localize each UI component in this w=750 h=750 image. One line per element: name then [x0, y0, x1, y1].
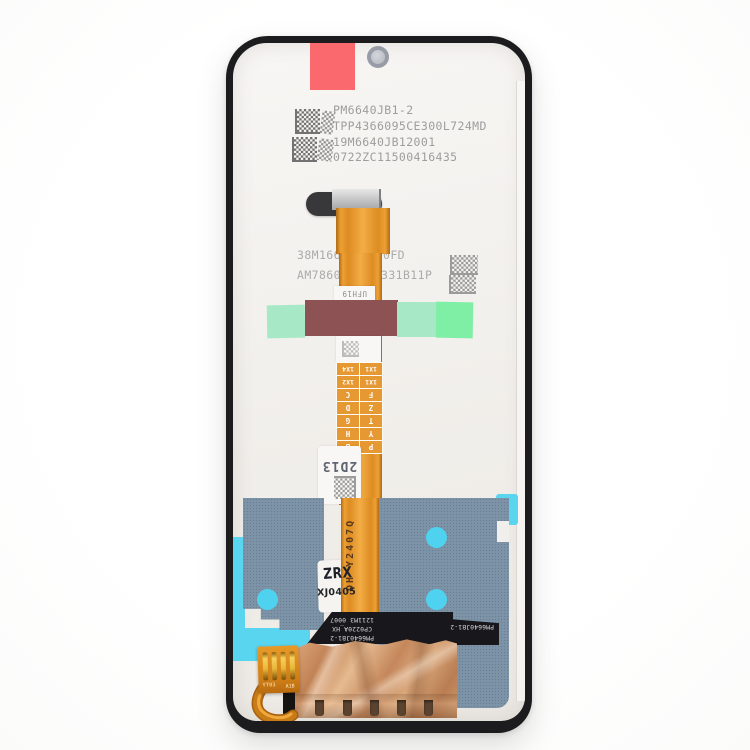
copper-foil-shield — [295, 637, 457, 718]
grid-row: ZD — [337, 402, 382, 415]
tape-maroon-center — [305, 300, 398, 336]
serial-line-1: PM6640JB1-2 — [333, 103, 525, 119]
mini-datamatrix-icon — [342, 341, 359, 357]
serial-code-block: PM6640JB1-2 TPP4366095CE300L724MD 19M664… — [333, 103, 525, 166]
stamp-zrx: ZRX — [323, 563, 353, 583]
mid-code-2-right: 331B11P — [381, 268, 432, 282]
adhesive-dot-1 — [426, 527, 447, 548]
qr-code-2d13 — [335, 476, 357, 499]
pad-text-2: A1B — [286, 683, 295, 689]
pad-text-1: YT03 — [262, 682, 275, 688]
lcd-back-panel: PM6640JB1-2 TPP4366095CE300L724MD 19M664… — [233, 43, 525, 721]
copper-notch — [315, 700, 324, 716]
tape-green-bright-right — [436, 302, 474, 339]
copper-notch — [397, 700, 406, 716]
mid-code-1-left: 38M166 — [297, 248, 341, 262]
panel-edge-sliver — [516, 81, 525, 701]
code-2d13-label: 2D13 — [318, 446, 361, 504]
adhesive-dot-2 — [426, 589, 447, 610]
connector-metal-plate — [332, 189, 381, 210]
copper-notch — [343, 700, 352, 716]
red-sticker — [310, 43, 355, 90]
tape-green-left — [267, 305, 306, 339]
gold-finger-pad: YT03 A1B — [257, 645, 300, 693]
datamatrix-code-mid-2 — [449, 275, 476, 294]
code-2d13-text: 2D13 — [322, 458, 357, 473]
grid-row: 1X11X2 — [337, 376, 382, 389]
grid-row: YH — [337, 428, 382, 441]
datamatrix-scatter-2 — [317, 138, 335, 162]
black-flex-text: PM6640JB1-2 CP0220A_HX 1211M3 0007 — [328, 614, 376, 642]
panel-hole — [367, 46, 389, 68]
datamatrix-code-mid-1 — [450, 255, 478, 275]
gold-finger — [262, 652, 267, 680]
grid-row: TG — [337, 415, 382, 428]
mid-code-2-left: AM7860 — [297, 268, 341, 282]
stamp-xj0405: XJ0405 — [317, 586, 356, 598]
grid-label-table: PB YH TG ZD FC 1X11X2 1X11X4 — [336, 362, 383, 454]
serial-line-3: 19M6640JB12001 — [333, 135, 525, 151]
graphite-sheet-left — [243, 498, 324, 630]
serial-line-4: 0722ZC11500416435 — [333, 150, 525, 166]
gold-finger — [271, 652, 276, 680]
scribble-label — [336, 336, 381, 362]
gold-finger — [289, 651, 294, 679]
datamatrix-code-top-2 — [292, 137, 317, 162]
gold-finger — [280, 652, 285, 680]
copper-notch — [370, 700, 379, 716]
lcd-assembly-outline: PM6640JB1-2 TPP4366095CE300L724MD 19M664… — [226, 36, 532, 733]
product-photo-canvas: PM6640JB1-2 TPP4366095CE300L724MD 19M664… — [0, 0, 750, 750]
datamatrix-code-top-1 — [295, 109, 320, 134]
graphite-edge-notch — [497, 521, 509, 542]
serial-line-2: TPP4366095CE300L724MD — [333, 119, 525, 135]
black-flex-text-right: PM6640JB1-2 — [456, 621, 494, 631]
flex-cable-upper — [336, 208, 390, 254]
grid-row: FC — [337, 389, 382, 402]
tape-green-mid-right — [397, 302, 437, 337]
copper-notch — [424, 700, 433, 716]
grid-row: 1X11X4 — [337, 363, 382, 376]
adhesive-dot-3 — [257, 589, 278, 610]
